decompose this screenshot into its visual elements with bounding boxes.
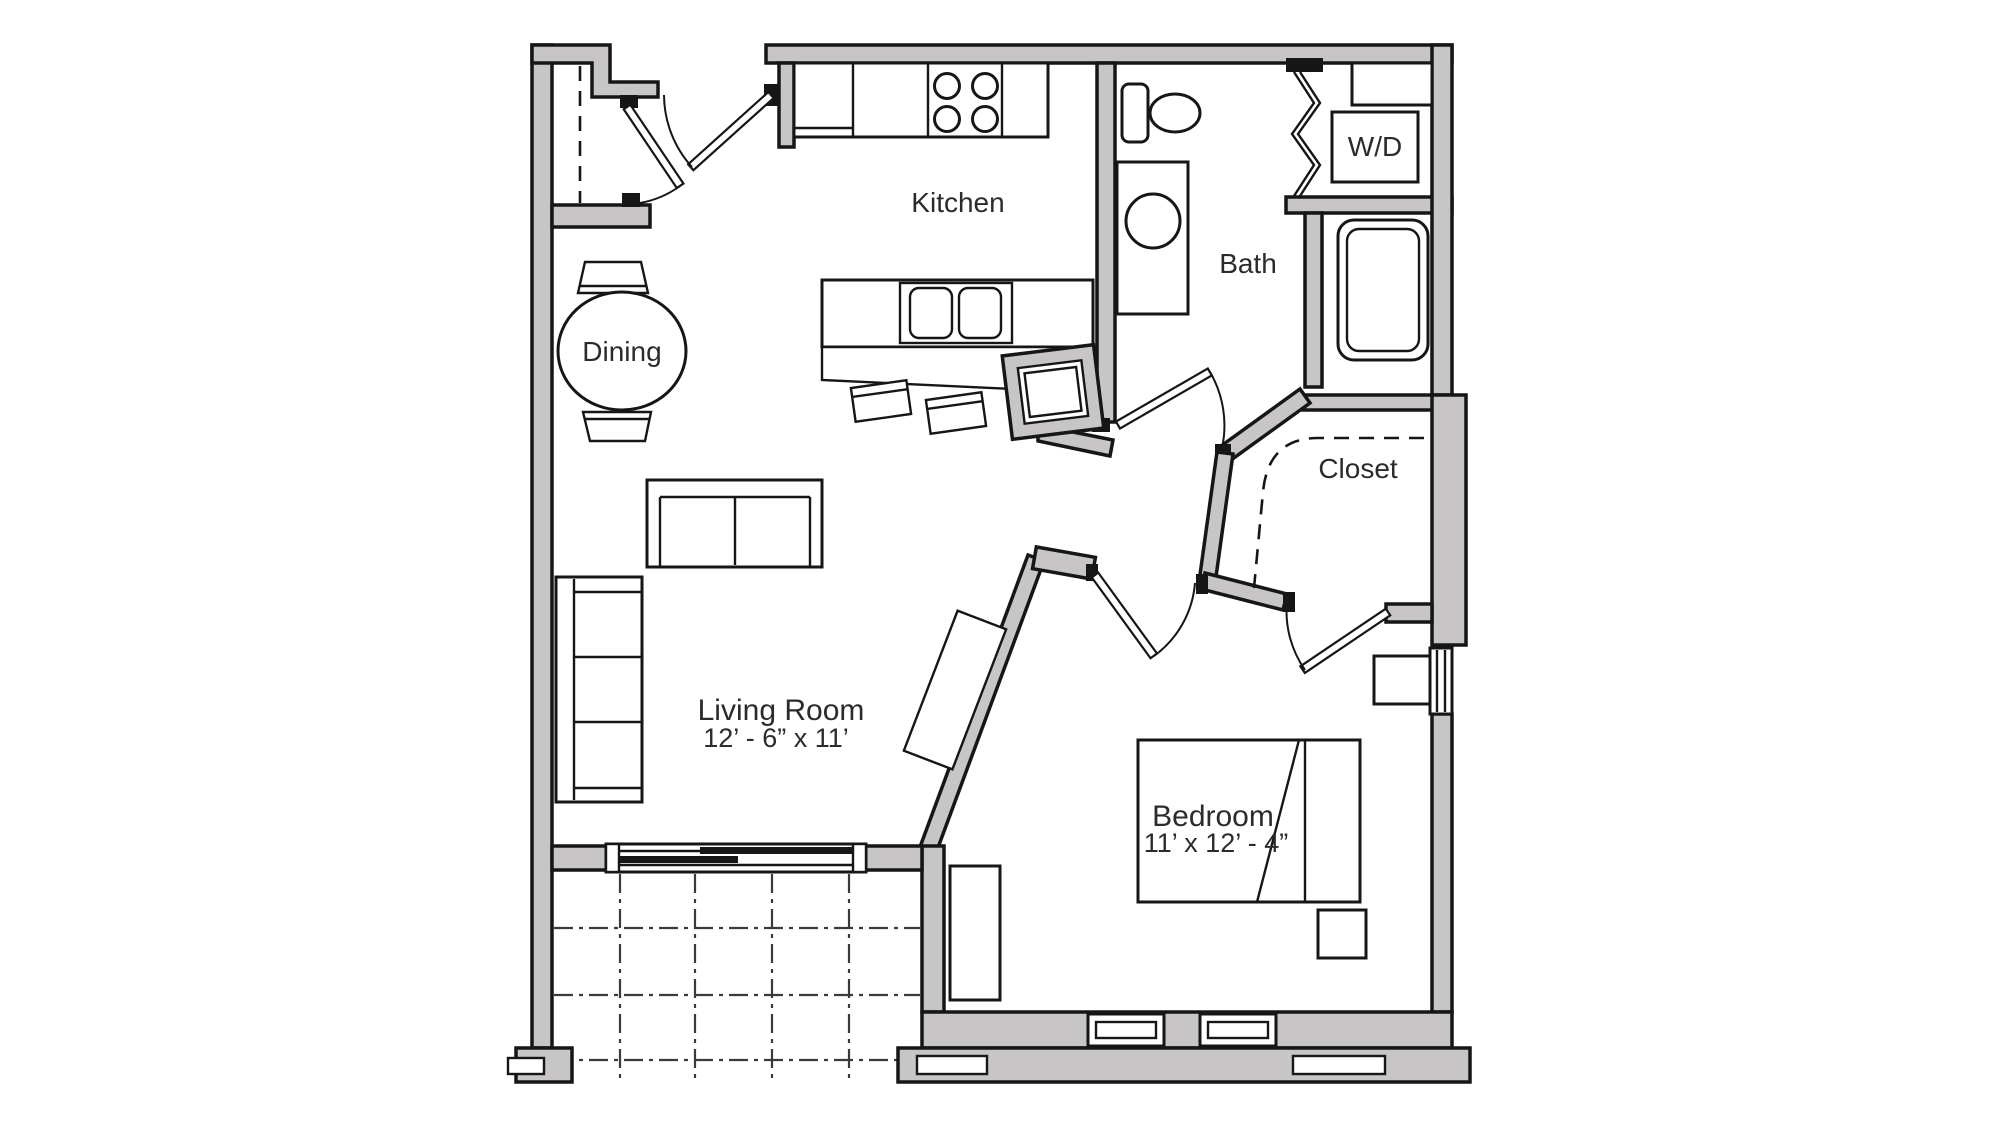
toilet xyxy=(1122,84,1200,142)
wall-closet-chamfer xyxy=(1221,389,1310,460)
label-bedroom-dims: 11’ x 12’ - 4” xyxy=(1144,828,1289,858)
bedroom-window-inner xyxy=(1096,1022,1156,1038)
wall-right-lower xyxy=(1432,714,1452,1012)
wd-top-jamb xyxy=(1286,58,1323,72)
wall-kitchen-bath xyxy=(1097,63,1115,422)
hall-jamb-right xyxy=(1283,592,1295,612)
dresser xyxy=(950,866,1000,1000)
wall-hall-bottom xyxy=(1201,573,1287,610)
kitchen-fixtures xyxy=(794,63,1104,439)
entry-closet-bottom-wall xyxy=(552,205,650,227)
dining-chair xyxy=(578,262,648,293)
nightstand-2 xyxy=(1318,910,1366,958)
label-living-room-dims: 12’ - 6” x 11’ xyxy=(703,723,849,753)
wall-right-closet xyxy=(1432,395,1466,645)
kitchen-counter xyxy=(794,63,1048,137)
wall-tub-left xyxy=(1305,213,1322,387)
sliding-glass-door xyxy=(606,844,866,872)
wall-lr-bottom-left xyxy=(552,846,610,870)
bottom-band-slot-left xyxy=(917,1056,987,1074)
label-bath: Bath xyxy=(1219,248,1277,279)
floor-plan: Kitchen Bath W/D Dining Closet Living Ro… xyxy=(0,0,2000,1126)
bathtub xyxy=(1338,220,1428,360)
label-dining: Dining xyxy=(582,336,661,367)
entry-closet-jamb xyxy=(622,193,640,207)
bedroom-door xyxy=(1092,573,1195,659)
bedroom-window-2-inner xyxy=(1208,1022,1268,1038)
slider-panel-1 xyxy=(700,847,856,854)
wall-closet-left xyxy=(1199,452,1233,584)
living-room-furniture xyxy=(556,480,1006,802)
wall-top-main xyxy=(766,45,1452,63)
side-window xyxy=(1430,648,1452,714)
slider-panel-2 xyxy=(614,856,738,863)
left-foot-slot xyxy=(508,1058,544,1074)
bath-door xyxy=(1116,369,1224,448)
loveseat xyxy=(647,480,822,567)
double-sink xyxy=(900,283,1012,343)
wall-wd-bottom xyxy=(1286,197,1452,213)
wall-bedroom-bottom xyxy=(922,1012,1452,1048)
wall-lr-bottom-right xyxy=(862,846,922,870)
label-kitchen: Kitchen xyxy=(911,187,1004,218)
nightstand xyxy=(1374,656,1430,704)
wall-tub-bottom xyxy=(1303,395,1452,410)
entry-closet-door xyxy=(624,105,684,203)
wall-right-upper xyxy=(1432,45,1452,395)
bar-stool-2 xyxy=(926,392,986,433)
entry-door xyxy=(664,92,774,170)
hall-jamb-left xyxy=(1196,574,1208,594)
wall-left xyxy=(532,45,552,1048)
dining-chair-2 xyxy=(583,412,651,441)
laundry-shelf xyxy=(1352,63,1432,105)
bottom-band-slot-right xyxy=(1293,1056,1385,1074)
label-laundry: W/D xyxy=(1348,131,1402,162)
floor-plan-canvas: Kitchen Bath W/D Dining Closet Living Ro… xyxy=(0,0,2000,1126)
patio-tile-grid xyxy=(554,874,920,1080)
bifold-door xyxy=(1292,72,1320,196)
sofa xyxy=(556,577,642,802)
vanity-sink xyxy=(1117,162,1188,314)
bar-stool xyxy=(851,380,911,421)
wall-closet-door-stub xyxy=(1386,604,1432,622)
wall-counter-stub xyxy=(779,63,794,147)
pantry-cabinet xyxy=(1002,345,1104,440)
wall-patio-bedroom xyxy=(922,846,944,1012)
label-closet: Closet xyxy=(1318,453,1398,484)
